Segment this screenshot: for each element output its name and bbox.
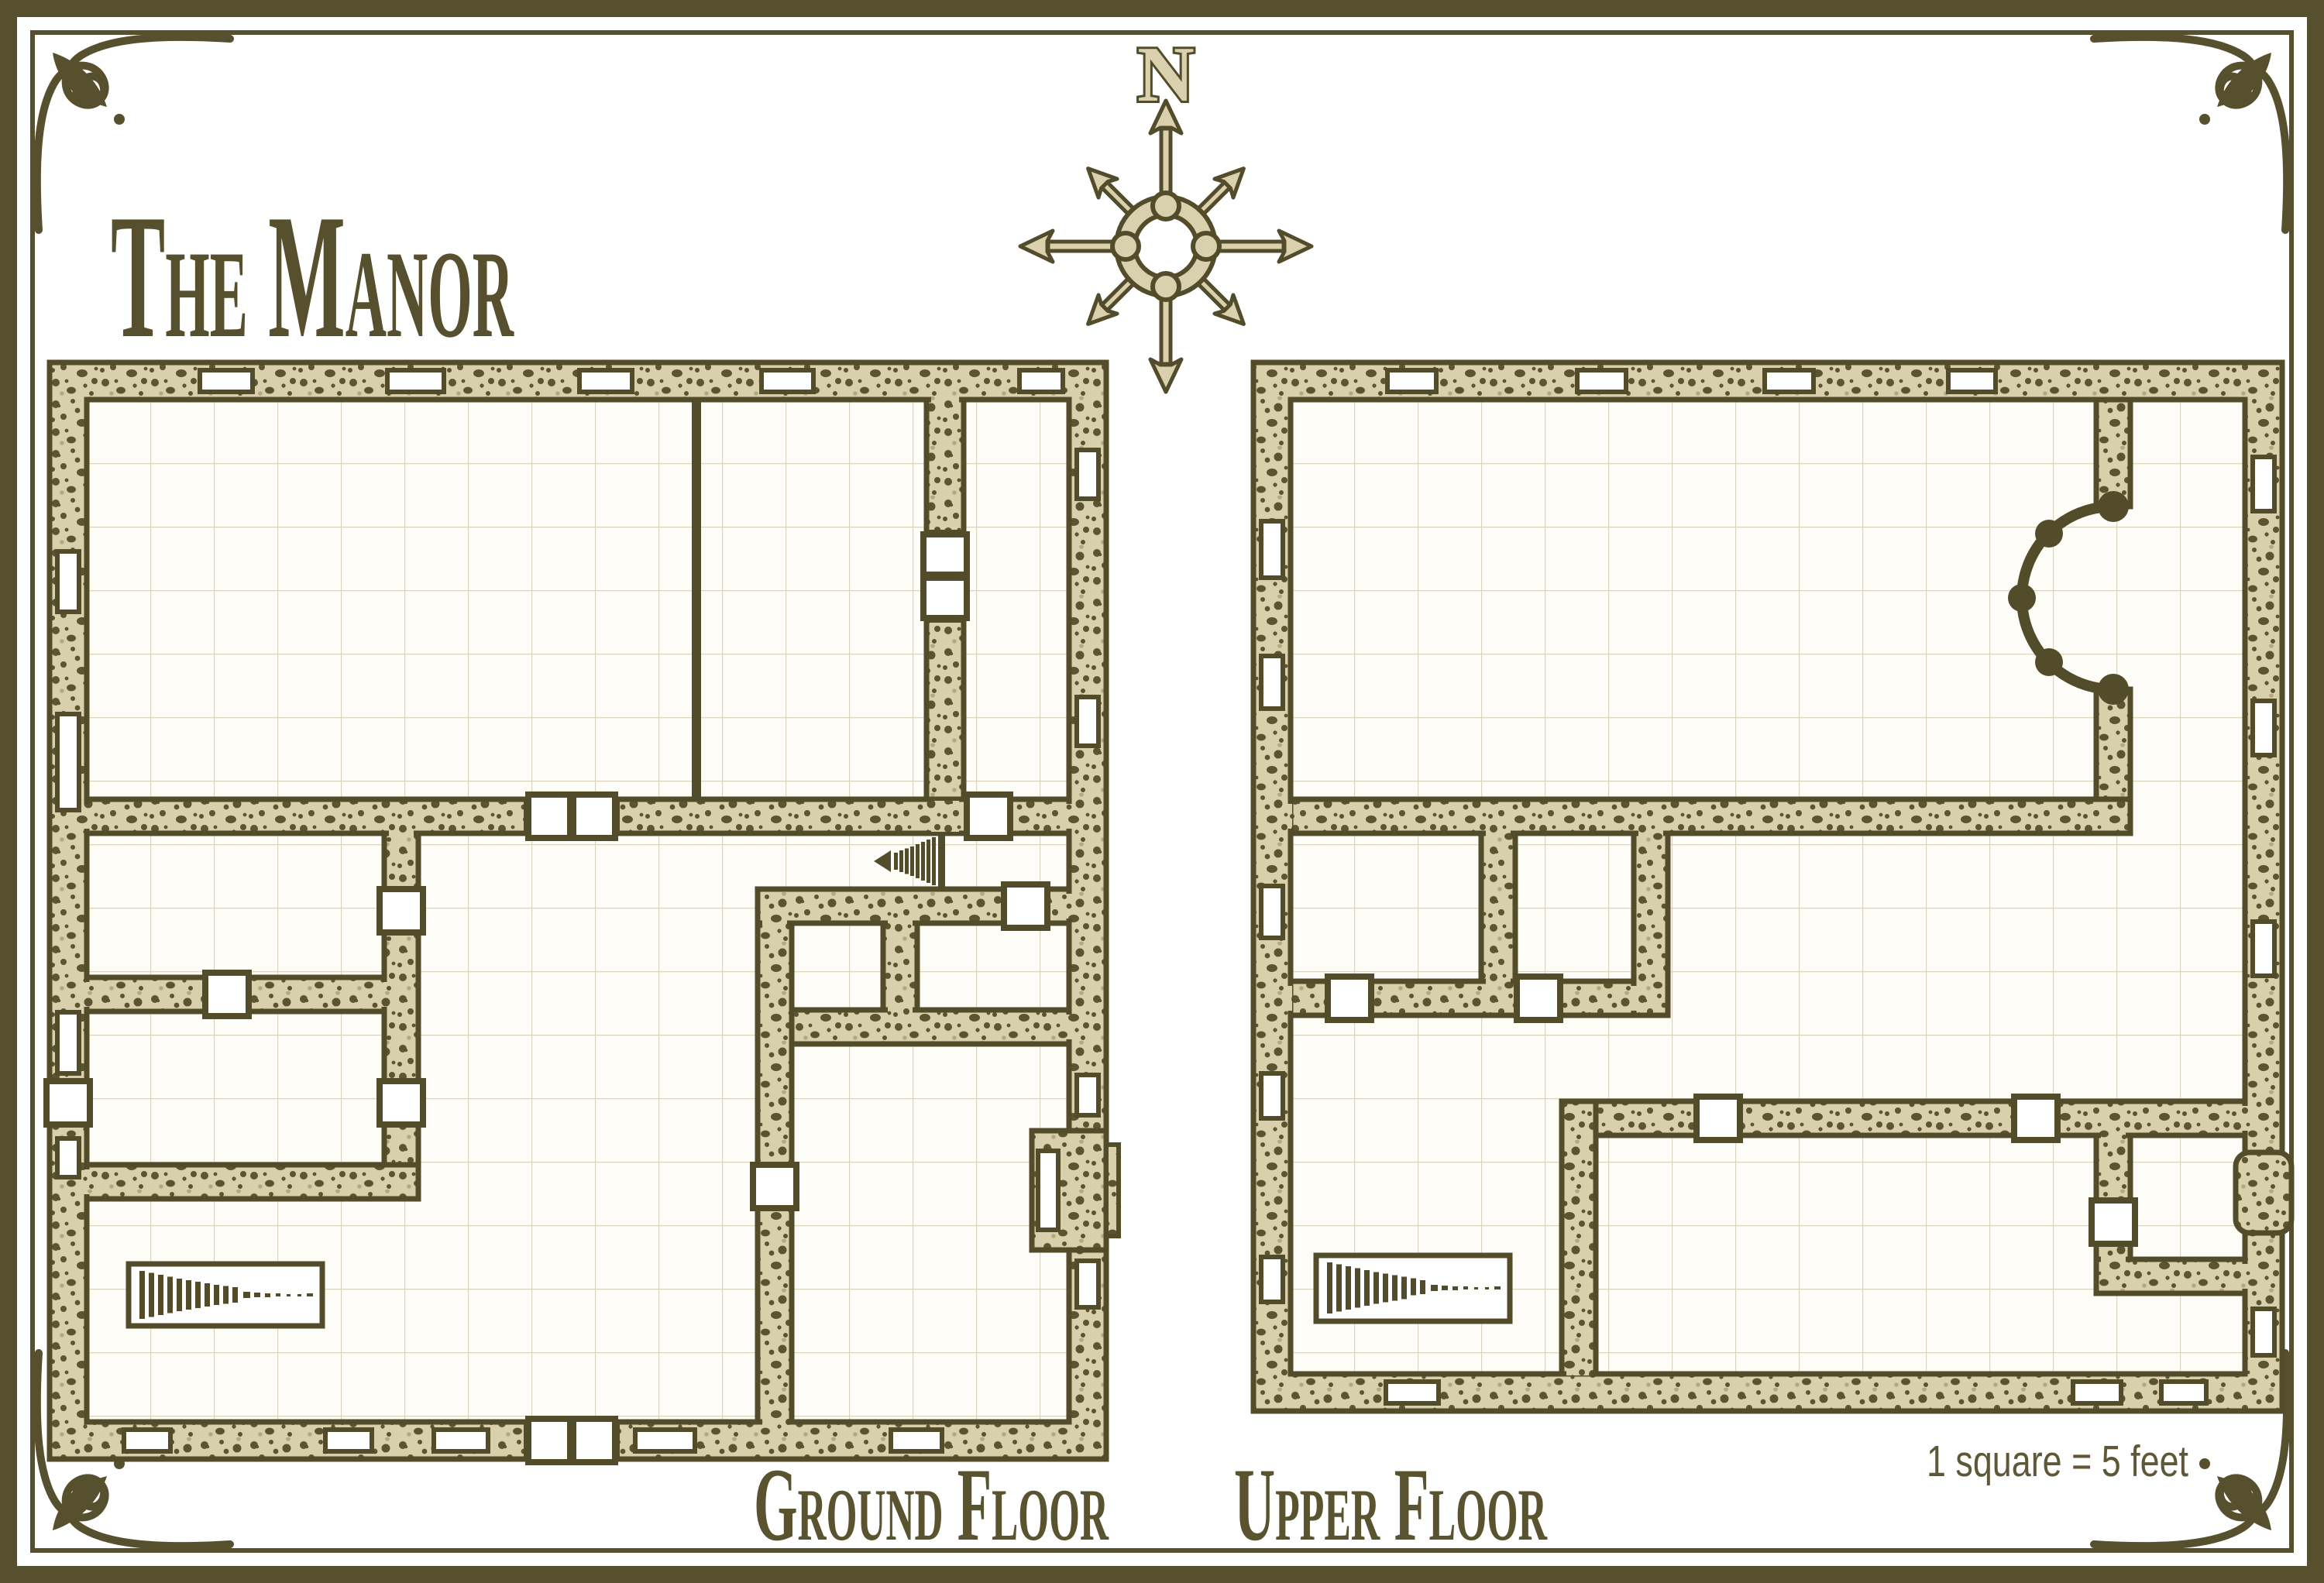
door xyxy=(2011,1097,2061,1140)
entrance-porch xyxy=(1032,1131,1119,1250)
door xyxy=(380,1078,423,1128)
door xyxy=(380,886,423,936)
manor-map-page: The Manor N xyxy=(0,0,2324,1583)
scale-note: 1 square = 5 feet xyxy=(1927,1437,2188,1486)
door xyxy=(753,1162,796,1211)
garderobe-bump xyxy=(2236,1152,2291,1233)
upper-floor-label: Upper Floor xyxy=(1234,1447,1548,1563)
door xyxy=(202,973,252,1016)
double-door xyxy=(923,530,967,623)
double-door xyxy=(524,795,620,838)
manor-map: The Manor N xyxy=(0,0,2324,1583)
door xyxy=(2092,1197,2135,1247)
side-entrance-door xyxy=(46,1078,90,1128)
stairs-icon xyxy=(129,1264,322,1326)
door xyxy=(1001,884,1050,928)
ground-floor-plan xyxy=(46,362,1119,1462)
door xyxy=(1514,977,1563,1020)
stairs-icon xyxy=(1316,1255,1510,1321)
upper-floor-plan xyxy=(1253,362,2291,1411)
thin-partition-wall xyxy=(692,400,701,799)
page-title: The Manor xyxy=(111,177,514,375)
double-door xyxy=(524,1419,620,1462)
door xyxy=(1693,1097,1743,1140)
ground-floor-label: Ground Floor xyxy=(754,1447,1109,1563)
door xyxy=(964,795,1013,838)
door xyxy=(1325,977,1374,1020)
